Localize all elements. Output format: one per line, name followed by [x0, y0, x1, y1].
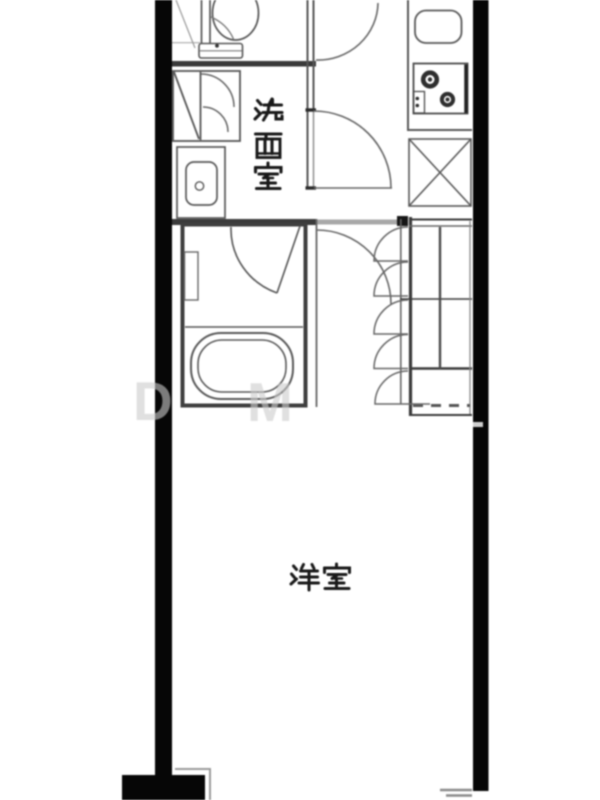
svg-text:M: M — [247, 371, 293, 433]
svg-text:D: D — [133, 370, 173, 432]
